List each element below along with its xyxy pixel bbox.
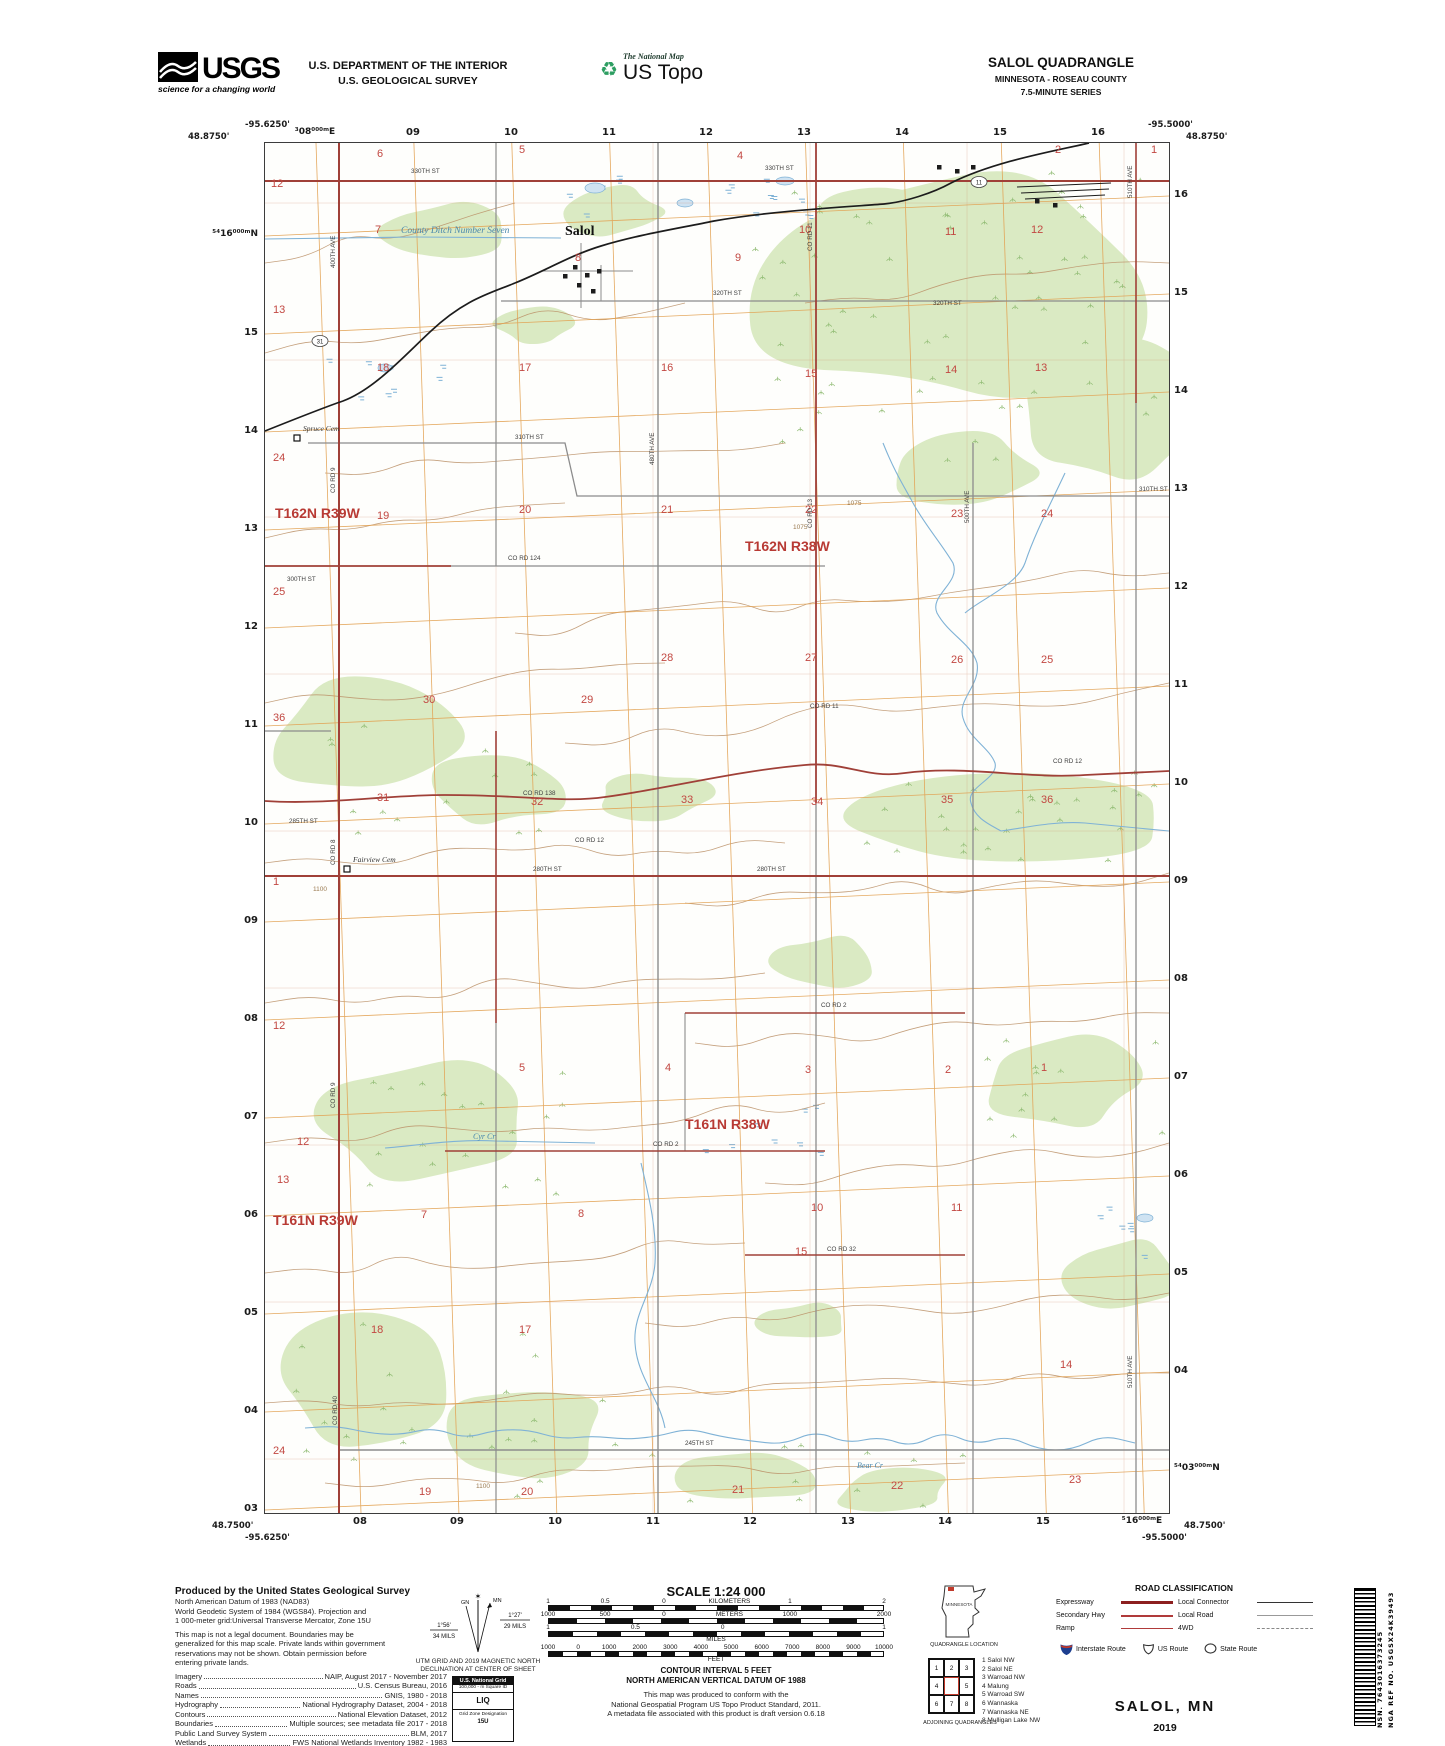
section-number: 19	[419, 1486, 431, 1498]
section-number: 7	[375, 224, 381, 236]
grid-tick-top: ³08⁰⁰⁰ᵐE	[295, 127, 335, 137]
cemetery-symbol	[294, 435, 300, 441]
adjoining-quad-name: 6 Wannaska	[982, 1700, 1040, 1709]
grid-tick-left: 07	[180, 1111, 258, 1122]
cemetery-symbol	[344, 866, 350, 872]
nga-ref-number: NGA REF NO. USGSX24K39493	[1387, 1588, 1395, 1728]
section-number: 12	[273, 1020, 285, 1032]
grid-tick-right: 14	[1174, 385, 1188, 396]
road-name-label: 285TH ST	[289, 818, 318, 825]
scale-bar-row: 10.50KILOMETERS12	[548, 1598, 884, 1611]
adjoining-cell: 8	[959, 1695, 974, 1713]
scale-bar-label: 5000	[724, 1644, 738, 1651]
scale-bar-row: 10005000METERS10002000	[548, 1611, 884, 1624]
grid-tick-left: 11	[180, 719, 258, 730]
section-number: 4	[737, 150, 743, 162]
grid-tick-top: 10	[504, 127, 518, 138]
usgs-topo-sheet: USGS science for a changing world U.S. D…	[0, 0, 1445, 1746]
road-name-label: 300TH ST	[287, 576, 316, 583]
grid-tick-bottom: 14	[938, 1516, 952, 1527]
datum-line: 1 000-meter grid:Universal Transverse Me…	[175, 1616, 447, 1626]
section-number: 29	[581, 694, 593, 706]
contour-elevation-label: 1100	[313, 886, 327, 893]
us-topo-label: US Topo	[623, 61, 703, 85]
svg-text:34 MILS: 34 MILS	[433, 1634, 455, 1640]
usgs-flag-icon	[158, 52, 198, 82]
adjoining-quad-name: 5 Warroad SW	[982, 1691, 1040, 1700]
section-number: 8	[575, 252, 581, 264]
grid-tick-bottom: 08	[353, 1516, 367, 1527]
county-route-number: 31	[317, 340, 324, 346]
grid-tick-right: 13	[1174, 483, 1188, 494]
scale-bar-label: 10000	[875, 1644, 893, 1651]
grid-tick-right: 04	[1174, 1365, 1188, 1376]
section-number: 15	[805, 368, 817, 380]
source-value: Multiple sources; see metadata file 2017…	[289, 1719, 447, 1729]
road-name-label: 330TH ST	[411, 168, 440, 175]
road-name-label: 510TH AVE	[1127, 1356, 1134, 1388]
road-name-label: 330TH ST	[765, 165, 794, 172]
section-number: 13	[277, 1174, 289, 1186]
route-shield-item: Interstate Route	[1060, 1642, 1126, 1657]
township-range-label: T162N R39W	[275, 505, 361, 521]
source-key: Hydrography	[175, 1700, 218, 1710]
adjoining-cell: 3	[959, 1659, 974, 1677]
corner-top-left-lat: 48.8750'	[188, 132, 229, 142]
scale-bar-label: 1000	[541, 1611, 555, 1618]
grid-tick-bottom: ⁵16⁰⁰⁰ᵐE	[1122, 1516, 1162, 1526]
grid-tick-left: 09	[180, 915, 258, 926]
datum-notes: North American Datum of 1983 (NAD83)Worl…	[175, 1597, 447, 1626]
road-class-sample-secondary	[1121, 1615, 1173, 1617]
legal-line: generalized for this map scale. Private …	[175, 1639, 447, 1649]
scale-bar-label: 3000	[663, 1644, 677, 1651]
grid-tick-left: 12	[180, 621, 258, 632]
grid-tick-left: 05	[180, 1307, 258, 1318]
grid-tick-right: 15	[1174, 287, 1188, 298]
road-name-label: CO RD 13	[807, 498, 814, 528]
township-range-label: T162N R38W	[745, 538, 831, 554]
source-row: HydrographyNational Hydrography Dataset,…	[175, 1700, 447, 1710]
corner-top-right-lon: -95.5000'	[1148, 120, 1193, 130]
quad-location-marker	[948, 1587, 954, 1591]
scale-bar-label: 2000	[877, 1611, 891, 1618]
imprint-name: SALOL, MN	[1080, 1698, 1250, 1715]
scale-bar-label: 500	[600, 1611, 611, 1618]
scale-bar-label: 0	[662, 1611, 666, 1618]
section-number: 23	[1069, 1474, 1081, 1486]
quad-title: SALOL QUADRANGLE	[930, 55, 1192, 70]
grid-tick-left: 13	[180, 523, 258, 534]
source-key: Boundaries	[175, 1719, 213, 1729]
grid-tick-top: 14	[895, 127, 909, 138]
road-name-label: CO RD 12	[575, 837, 605, 844]
scale-title: SCALE 1:24 000	[500, 1584, 932, 1599]
section-number: 15	[795, 1246, 807, 1258]
road-class-label: Local Road	[1178, 1612, 1252, 1619]
grid-tick-left: 15	[180, 327, 258, 338]
section-number: 16	[661, 362, 673, 374]
section-number: 4	[665, 1062, 671, 1074]
scale-bar-label: 0	[721, 1624, 725, 1631]
grid-tick-top: 15	[993, 127, 1007, 138]
section-number: 30	[423, 694, 435, 706]
section-number: 14	[945, 364, 957, 376]
adjoining-quad-name: 3 Warroad NW	[982, 1674, 1040, 1683]
road-class-label: Local Connector	[1178, 1599, 1252, 1606]
adjoining-cell: 6	[929, 1695, 944, 1713]
scale-bar-label: 0	[662, 1598, 666, 1605]
scale-bars: 10.50KILOMETERS1210005000METERS100020001…	[548, 1598, 884, 1664]
section-number: 14	[1060, 1359, 1072, 1371]
township-range-label: T161N R38W	[685, 1116, 771, 1132]
grid-tick-right: 11	[1174, 679, 1188, 690]
scale-bar-label: KILOMETERS	[708, 1598, 750, 1605]
imprint-year: 2019	[1080, 1722, 1250, 1734]
road-name-label: CO RD 12	[1053, 758, 1083, 765]
scale-bar-label: 1	[546, 1598, 550, 1605]
scale-bar-label: 2000	[632, 1644, 646, 1651]
section-number: 18	[377, 362, 389, 374]
road-name-label: 280TH ST	[533, 866, 562, 873]
source-value: GNIS, 1980 - 2018	[384, 1691, 447, 1701]
grid-tick-bottom: 13	[841, 1516, 855, 1527]
section-number: 24	[273, 452, 285, 464]
grid-tick-bottom: 10	[548, 1516, 562, 1527]
grid-tick-right: 06	[1174, 1169, 1188, 1180]
road-class-sample-connector	[1257, 1602, 1313, 1603]
corner-bottom-left-lon: -95.6250'	[245, 1533, 290, 1543]
road-class-label: 4WD	[1178, 1625, 1252, 1632]
adjoining-quad-name: 4 Malung	[982, 1683, 1040, 1692]
section-number: 12	[1031, 224, 1043, 236]
scale-bar-label: 0.5	[631, 1624, 640, 1631]
road-name-label: 245TH ST	[685, 1440, 714, 1447]
conformance-line: National Geospatial Program US Topo Prod…	[500, 1700, 932, 1710]
section-number: 13	[1035, 362, 1047, 374]
section-number: 13	[273, 304, 285, 316]
grid-tick-right: 10	[1174, 777, 1188, 788]
route-shield-label: State Route	[1220, 1646, 1257, 1653]
source-row: Public Land Survey SystemBLM, 2017	[175, 1729, 447, 1739]
section-number: 12	[271, 178, 283, 190]
scale-bar-unit: MILES	[548, 1636, 884, 1644]
scale-bar-label: 6000	[754, 1644, 768, 1651]
grid-tick-top: 09	[406, 127, 420, 138]
section-number: 21	[732, 1484, 744, 1496]
road-class-label: Secondary Hwy	[1056, 1612, 1116, 1619]
route-shield-item: US Route	[1142, 1642, 1188, 1657]
section-number: 33	[681, 794, 693, 806]
adjoining-cell: 4	[929, 1677, 944, 1695]
scale-bar-label: 1	[788, 1598, 792, 1605]
svg-text:1°27': 1°27'	[508, 1613, 522, 1619]
road-class-label: Ramp	[1056, 1625, 1116, 1632]
section-number: 9	[735, 252, 741, 264]
barcode	[1354, 1588, 1376, 1726]
scale-bar-label: 1000	[541, 1644, 555, 1651]
road-classification: ROAD CLASSIFICATION ExpresswayLocal Conn…	[1056, 1583, 1312, 1657]
road-name-label: 280TH ST	[757, 866, 786, 873]
section-number: 5	[519, 144, 525, 156]
section-number: 17	[519, 1324, 531, 1336]
grid-tick-top: 12	[699, 127, 713, 138]
source-key: Imagery	[175, 1672, 202, 1682]
adjoining-quad-name: 7 Wannaska NE	[982, 1709, 1040, 1718]
map-canvas: 1075107511001100121324253611213246542178…	[264, 142, 1170, 1514]
road-name-label: CO RD 40	[332, 1395, 339, 1425]
legal-line: reservations may not be shown. Obtain pe…	[175, 1649, 447, 1659]
grid-tick-bottom: 12	[743, 1516, 757, 1527]
road-name-label: CO RD 32	[827, 1246, 857, 1253]
adjoining-quads-grid: 12345678	[928, 1658, 975, 1714]
road-class-sample-local	[1257, 1615, 1313, 1616]
quad-subtitle1: MINNESOTA - ROSEAU COUNTY	[930, 74, 1192, 84]
section-number: 18	[371, 1324, 383, 1336]
scale-bar-label: 2	[882, 1598, 886, 1605]
source-value: BLM, 2017	[411, 1729, 447, 1739]
scale-bar-label: 1000	[602, 1644, 616, 1651]
grid-tick-top: 11	[602, 127, 616, 138]
county-route-number: 11	[976, 181, 983, 187]
grid-tick-bottom: 09	[450, 1516, 464, 1527]
corner-top-left-lon: -95.6250'	[245, 120, 290, 130]
adjoining-quad-name: 2 Salol NE	[982, 1666, 1040, 1675]
state-shield-icon	[1204, 1642, 1217, 1657]
nsn-number: NSN. 7643016373245	[1376, 1588, 1384, 1728]
section-number: 1	[1151, 144, 1157, 156]
department-line2: U.S. GEOLOGICAL SURVEY	[268, 75, 548, 87]
section-number: 6	[377, 148, 383, 160]
section-number: 3	[805, 1064, 811, 1076]
road-name-label: CO RD 2	[653, 1141, 679, 1148]
conformance-line: This map was produced to conform with th…	[500, 1690, 932, 1700]
svg-text:29 MILS: 29 MILS	[504, 1624, 526, 1630]
grid-tick-bottom: 11	[646, 1516, 660, 1527]
section-number: 31	[377, 792, 389, 804]
grid-tick-left: 10	[180, 817, 258, 828]
true-north-star: ✶	[475, 1592, 482, 1601]
section-number: 25	[273, 586, 285, 598]
grid-tick-left: 06	[180, 1209, 258, 1220]
national-map-icon: ♻	[600, 57, 618, 81]
section-number: 2	[1055, 144, 1061, 156]
grid-tick-top: 16	[1091, 127, 1105, 138]
scale-bar-label: METERS	[716, 1611, 743, 1618]
section-number: 27	[805, 652, 817, 664]
section-number: 25	[1041, 654, 1053, 666]
scale-bar-label: 1	[546, 1624, 550, 1631]
contour-interval-note: CONTOUR INTERVAL 5 FEET NORTH AMERICAN V…	[500, 1666, 932, 1686]
corner-bottom-right-lat: 48.7500'	[1184, 1521, 1225, 1531]
section-number: 32	[531, 796, 543, 808]
scale-bar-label: 1000	[783, 1611, 797, 1618]
state-locator-map: MINNESOTA	[932, 1582, 994, 1640]
produced-by: Produced by the United States Geological…	[175, 1586, 447, 1597]
adjoining-quads-caption: ADJOINING QUADRANGLES	[905, 1720, 1015, 1726]
section-number: 34	[811, 796, 823, 808]
section-number: 20	[519, 504, 531, 516]
section-number: 20	[521, 1486, 533, 1498]
section-number: 5	[519, 1062, 525, 1074]
cemetery-label: Fairview Cem	[352, 855, 396, 864]
scale-bar-label: 0	[576, 1644, 580, 1651]
grid-tick-right: 16	[1174, 189, 1188, 200]
grid-tick-right: 07	[1174, 1071, 1188, 1082]
source-row: RoadsU.S. Census Bureau, 2016	[175, 1681, 447, 1691]
road-name-label: CO RD 9	[330, 1082, 337, 1108]
section-number: 12	[297, 1136, 309, 1148]
national-map-label: The National Map	[623, 52, 703, 61]
source-row: WetlandsFWS National Wetlands Inventory …	[175, 1738, 447, 1746]
section-number: 8	[578, 1208, 584, 1220]
section-number: 11	[945, 226, 956, 238]
grid-tick-left: 08	[180, 1013, 258, 1024]
road-class-label: Expressway	[1056, 1599, 1116, 1606]
source-row: ContoursNational Elevation Dataset, 2012	[175, 1710, 447, 1720]
section-number: 36	[273, 712, 285, 724]
section-number: 35	[941, 794, 953, 806]
source-row: NamesGNIS, 1980 - 2018	[175, 1691, 447, 1701]
scale-bar-label: 4000	[694, 1644, 708, 1651]
scale-bar-unit: FEET	[548, 1656, 884, 1664]
scale-bar-label: 0.5	[601, 1598, 610, 1605]
data-source-list: ImageryNAIP, August 2017 - November 2017…	[175, 1672, 447, 1746]
contour-elevation-label: 1100	[476, 1483, 490, 1490]
road-class-title: ROAD CLASSIFICATION	[1056, 1583, 1312, 1593]
scale-bar-label: 1	[882, 1624, 886, 1631]
section-number: 11	[951, 1202, 962, 1214]
declination-diagram: ✶ GN MN 1°56' 34 MILS 1°27' 29 MILS	[408, 1590, 548, 1658]
cemetery-label: Spruce Cem	[303, 424, 340, 433]
road-name-label: CO RD 11	[807, 222, 814, 251]
route-shield-label: Interstate Route	[1076, 1646, 1126, 1653]
grid-tick-bottom: 15	[1036, 1516, 1050, 1527]
township-range-label: T161N R39W	[273, 1212, 359, 1228]
section-number: 21	[661, 504, 673, 516]
source-value: National Elevation Dataset, 2012	[338, 1710, 447, 1720]
source-key: Contours	[175, 1710, 205, 1720]
source-key: Roads	[175, 1681, 197, 1691]
section-number: 28	[661, 652, 673, 664]
department-heading: U.S. DEPARTMENT OF THE INTERIOR U.S. GEO…	[268, 60, 548, 87]
contour-elevation-label: 1075	[793, 524, 808, 531]
conformance-line: A metadata file associated with this pro…	[500, 1709, 932, 1719]
road-name-label: CO RD 9	[330, 467, 337, 493]
section-number: 10	[811, 1202, 823, 1214]
legal-line: This map is not a legal document. Bounda…	[175, 1630, 447, 1640]
grid-tick-left: 04	[180, 1405, 258, 1416]
usng-zone: 15U	[453, 1718, 513, 1726]
road-class-sample-fourwd	[1257, 1628, 1313, 1629]
road-name-label: CO RD 11	[810, 703, 839, 710]
section-number: 2	[945, 1064, 951, 1076]
water-feature-label: County Ditch Number Seven	[401, 226, 510, 236]
road-class-sample-expressway	[1121, 1601, 1173, 1604]
grid-tick-right: ⁵⁴03⁰⁰⁰ᵐN	[1174, 1463, 1220, 1473]
source-key: Wetlands	[175, 1738, 206, 1746]
section-number: 19	[377, 510, 389, 522]
road-name-label: CO RD 2	[821, 1002, 847, 1009]
adjoining-cell-this-quad	[944, 1677, 959, 1695]
contour-elevation-label: 1075	[847, 500, 862, 507]
interstate-shield-icon	[1060, 1642, 1073, 1657]
source-value: FWS National Wetlands Inventory 1982 - 1…	[292, 1738, 447, 1746]
grid-tick-right: 09	[1174, 875, 1188, 886]
adjoining-cell: 1	[929, 1659, 944, 1677]
road-name-label: 480TH AVE	[649, 433, 656, 465]
quadrangle-heading: SALOL QUADRANGLE MINNESOTA - ROSEAU COUN…	[930, 55, 1192, 97]
scale-bar-label: 7000	[785, 1644, 799, 1651]
route-shield-label: US Route	[1158, 1646, 1188, 1653]
section-number: 26	[951, 654, 963, 666]
grid-tick-left: 14	[180, 425, 258, 436]
road-name-label: 320TH ST	[713, 290, 742, 297]
road-name-label: 320TH ST	[933, 300, 962, 307]
section-number: 17	[519, 362, 531, 374]
svg-text:GN: GN	[461, 1600, 469, 1606]
water-feature-label: Bear Cr	[857, 1461, 884, 1470]
section-number: 24	[273, 1445, 285, 1457]
road-name-label: 310TH ST	[515, 434, 544, 441]
svg-text:MINNESOTA: MINNESOTA	[946, 1602, 974, 1607]
adjoining-quads-list: 1 Salol NW2 Salol NE3 Warroad NW4 Malung…	[982, 1657, 1040, 1726]
source-value: U.S. Census Bureau, 2016	[358, 1681, 447, 1691]
road-name-label: 400TH AVE	[330, 236, 337, 268]
svg-text:1°56': 1°56'	[437, 1623, 451, 1629]
grid-tick-right: 05	[1174, 1267, 1188, 1278]
corner-bottom-right-lon: -95.5000'	[1142, 1533, 1187, 1543]
road-class-sample-ramp	[1121, 1628, 1173, 1629]
grid-tick-top: 13	[797, 127, 811, 138]
road-name-label: CO RD 8	[330, 839, 337, 865]
datum-line: World Geodetic System of 1984 (WGS84). P…	[175, 1607, 447, 1617]
grid-tick-left: ⁵⁴16⁰⁰⁰ᵐN	[180, 229, 258, 239]
section-number: 24	[1041, 508, 1053, 520]
town-label: Salol	[565, 224, 595, 239]
adjoining-cell: 7	[944, 1695, 959, 1713]
grid-tick-left: 03	[180, 1503, 258, 1514]
road-name-label: CO RD 124	[508, 555, 541, 562]
source-row: BoundariesMultiple sources; see metadata…	[175, 1719, 447, 1729]
road-name-label: 310TH ST	[1139, 486, 1168, 493]
source-value: National Hydrography Dataset, 2004 - 201…	[302, 1700, 447, 1710]
department-line1: U.S. DEPARTMENT OF THE INTERIOR	[268, 60, 548, 72]
source-key: Public Land Survey System	[175, 1729, 267, 1739]
section-number: 22	[891, 1480, 903, 1492]
section-number: 7	[421, 1209, 427, 1221]
corner-bottom-left-lat: 48.7500'	[212, 1521, 253, 1531]
section-number: 1	[1041, 1062, 1047, 1074]
adjoining-quad-name: 1 Salol NW	[982, 1657, 1040, 1666]
adjoining-cell: 2	[944, 1659, 959, 1677]
us-shield-icon	[1142, 1642, 1155, 1657]
quad-location-caption: QUADRANGLE LOCATION	[912, 1642, 1016, 1648]
grid-tick-right: 12	[1174, 581, 1188, 592]
route-shield-item: State Route	[1204, 1642, 1257, 1657]
conformance-note: This map was produced to conform with th…	[500, 1690, 932, 1719]
road-name-label: CO RD 138	[523, 790, 556, 797]
topo-map-svg: 1075107511001100121324253611213246542178…	[265, 143, 1169, 1513]
corner-top-right-lat: 48.8750'	[1186, 132, 1227, 142]
section-number: 23	[951, 508, 963, 520]
scale-bar-label: 8000	[816, 1644, 830, 1651]
quad-subtitle2: 7.5-MINUTE SERIES	[930, 87, 1192, 97]
map-imprint: SALOL, MN 2019	[1080, 1698, 1250, 1734]
water-feature-label: Cyr Cr	[473, 1132, 496, 1141]
grid-tick-right: 08	[1174, 973, 1188, 984]
scale-bar-label: 9000	[846, 1644, 860, 1651]
